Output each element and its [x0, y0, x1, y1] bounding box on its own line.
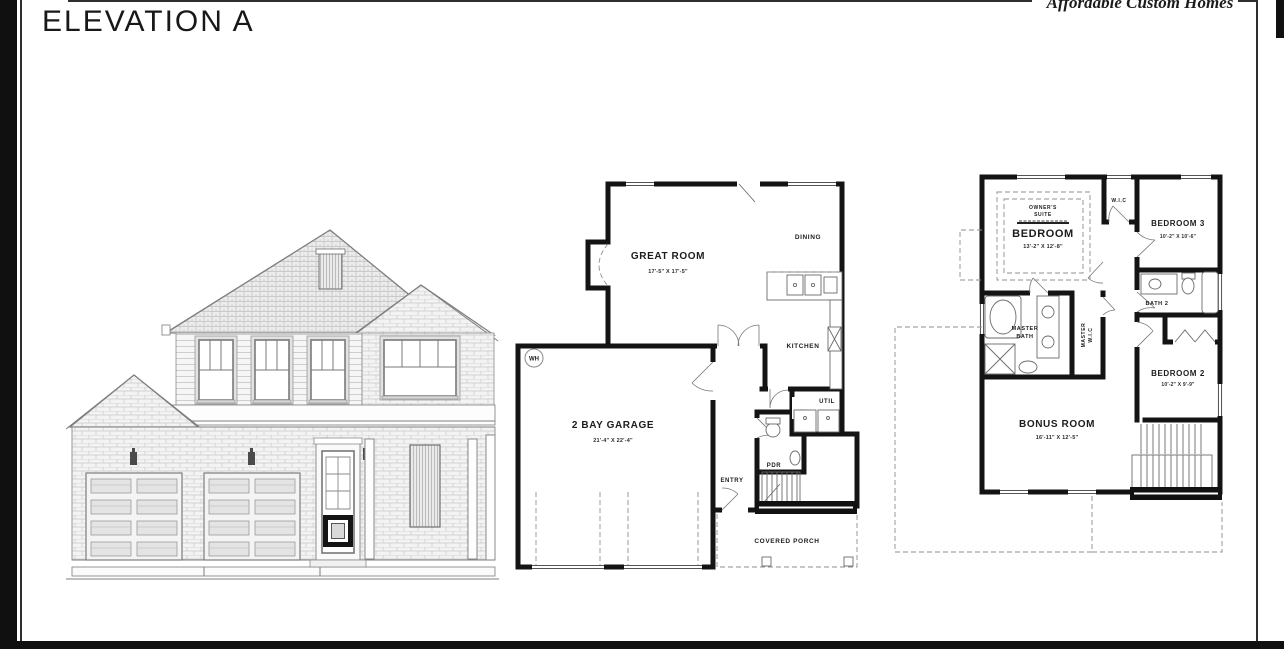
- bonus-room-label: BONUS ROOM: [1019, 419, 1095, 430]
- left-letterbox-bar: [0, 0, 17, 641]
- brand-name: Affordable Custom Homes: [1040, 0, 1240, 13]
- porch-header: [755, 501, 857, 514]
- kitchen-counters: [767, 272, 842, 389]
- great-room-dims: 17'-5" X 17'-5": [648, 269, 688, 275]
- stairs-floor2: [1132, 424, 1212, 492]
- crossed-out-label: [1017, 221, 1069, 223]
- bedroom-dims: 13'-2" X 12'-8": [1023, 244, 1063, 250]
- garage-door-left: [86, 473, 182, 560]
- second-floor-windows: [195, 336, 460, 404]
- page-title: ELEVATION A: [42, 5, 255, 39]
- master-bath-line2: BATH: [1016, 334, 1033, 340]
- wh-label: WH: [529, 357, 539, 363]
- kitchen-label: KITCHEN: [786, 343, 819, 350]
- sheet: ELEVATION A Affordable Custom Homes: [0, 0, 1284, 649]
- garage-door-right: [204, 473, 300, 560]
- wic-label: W.I.C: [1111, 198, 1126, 204]
- foundation: [66, 560, 499, 579]
- great-room-label: GREAT ROOM: [631, 251, 705, 262]
- shutter-window: [410, 445, 440, 527]
- entry-door: [314, 438, 362, 560]
- first-floor-plan: WH GREAT ROOM 17'-5" X 17'-5" DINING KIT…: [512, 172, 864, 572]
- attic-vent: [316, 249, 345, 289]
- garage-dims: 21'-4" X 22'-4": [593, 438, 633, 444]
- washer-dryer: [794, 410, 839, 432]
- sheet-frame-right: [1256, 0, 1258, 641]
- master-bath-line1: MASTER: [1012, 326, 1039, 332]
- master-wic-line1: MASTER: [1081, 323, 1087, 348]
- front-elevation-drawing: [58, 227, 503, 583]
- bedroom3-label: BEDROOM 3: [1151, 219, 1205, 228]
- right-corner-bar: [1276, 0, 1284, 38]
- entry-label: ENTRY: [720, 478, 743, 484]
- second-floor-plan: OWNER'S SUITE BEDROOM 13'-2" X 12'-8" W.…: [885, 162, 1237, 562]
- master-wic-line2: W.I.C: [1088, 327, 1094, 342]
- bedroom2-dims: 10'-2" X 9'-9": [1161, 382, 1195, 388]
- floor2-porch-header: [1130, 487, 1222, 500]
- bedroom2-label: BEDROOM 2: [1151, 369, 1205, 378]
- bottom-letterbox-bar: [0, 641, 1284, 649]
- covered-porch-label: COVERED PORCH: [754, 538, 819, 545]
- dining-label: DINING: [795, 234, 821, 241]
- util-label: UTIL: [819, 399, 835, 405]
- pdr-label: PDR: [767, 463, 782, 469]
- owners-suite-line1: OWNER'S: [1029, 205, 1057, 211]
- sheet-frame-left: [20, 0, 22, 641]
- bath2-label: BATH 2: [1145, 301, 1168, 307]
- owners-suite-line2: SUITE: [1034, 212, 1052, 218]
- bonus-room-dims: 16'-11" X 12'-5": [1036, 435, 1079, 441]
- bedroom-label: BEDROOM: [1012, 228, 1074, 240]
- sheet-frame-top-right: [1238, 0, 1256, 2]
- garage-label: 2 BAY GARAGE: [572, 420, 654, 431]
- bedroom3-dims: 10'-2" X 10'-6": [1160, 234, 1197, 240]
- garage-door-tracks: [536, 492, 698, 565]
- water-heater: WH: [525, 349, 543, 367]
- sheet-frame-top-left: [68, 0, 1032, 2]
